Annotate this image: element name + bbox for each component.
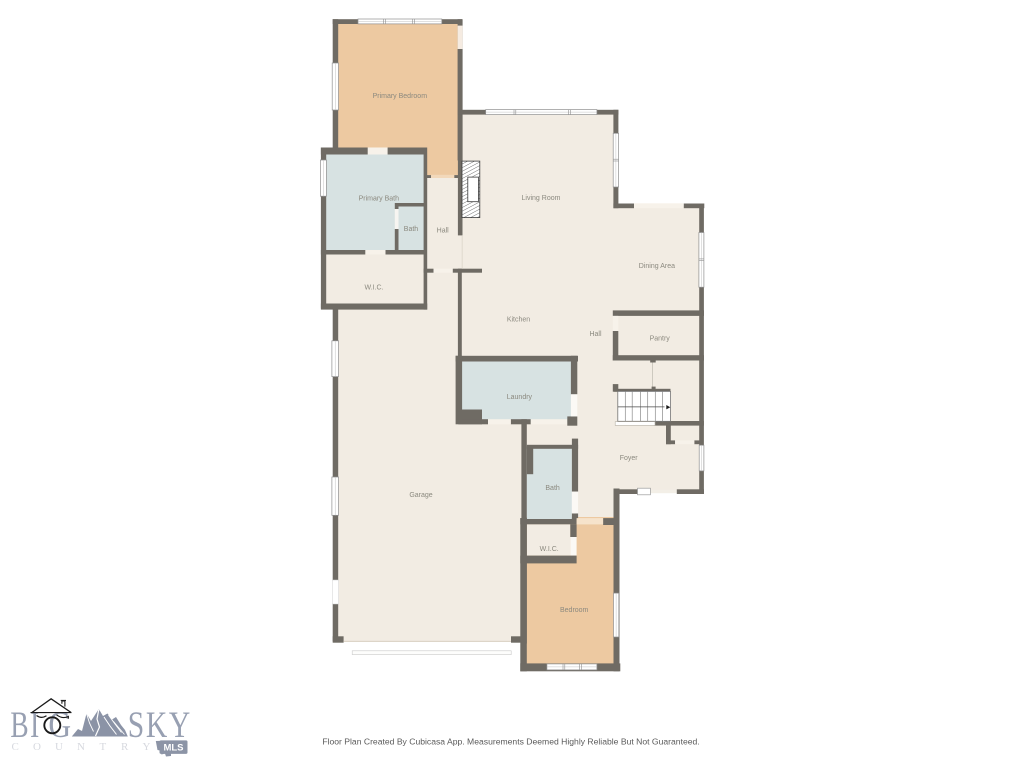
svg-text:Bedroom: Bedroom [560, 607, 589, 614]
svg-text:Foyer: Foyer [620, 455, 639, 462]
svg-text:Kitchen: Kitchen [507, 316, 530, 323]
svg-text:C: C [12, 741, 19, 753]
svg-text:Bath: Bath [545, 485, 560, 492]
svg-text:Y: Y [143, 741, 151, 753]
svg-text:Floor Plan Created By Cubicasa: Floor Plan Created By Cubicasa App. Meas… [322, 737, 699, 747]
svg-text:N: N [77, 741, 85, 753]
svg-text:Laundry: Laundry [507, 394, 533, 401]
svg-text:T: T [100, 741, 107, 753]
svg-text:Garage: Garage [409, 492, 432, 499]
svg-text:BI: BI [10, 705, 40, 746]
svg-text:Primary Bath: Primary Bath [359, 196, 400, 203]
svg-text:MLS: MLS [163, 743, 183, 754]
svg-text:Primary Bedroom: Primary Bedroom [373, 93, 428, 100]
svg-text:W.I.C.: W.I.C. [364, 285, 383, 292]
svg-text:Living Room: Living Room [522, 195, 561, 202]
svg-text:Hall: Hall [589, 331, 602, 338]
svg-text:U: U [55, 741, 63, 753]
svg-text:Hall: Hall [437, 227, 450, 234]
svg-text:Dining Area: Dining Area [639, 263, 675, 270]
svg-text:Pantry: Pantry [650, 335, 671, 342]
svg-text:SKY: SKY [128, 705, 192, 746]
svg-text:R: R [121, 741, 129, 753]
svg-text:O: O [33, 741, 41, 753]
svg-text:Bath: Bath [404, 226, 419, 233]
svg-text:W.I.C.: W.I.C. [540, 546, 559, 553]
